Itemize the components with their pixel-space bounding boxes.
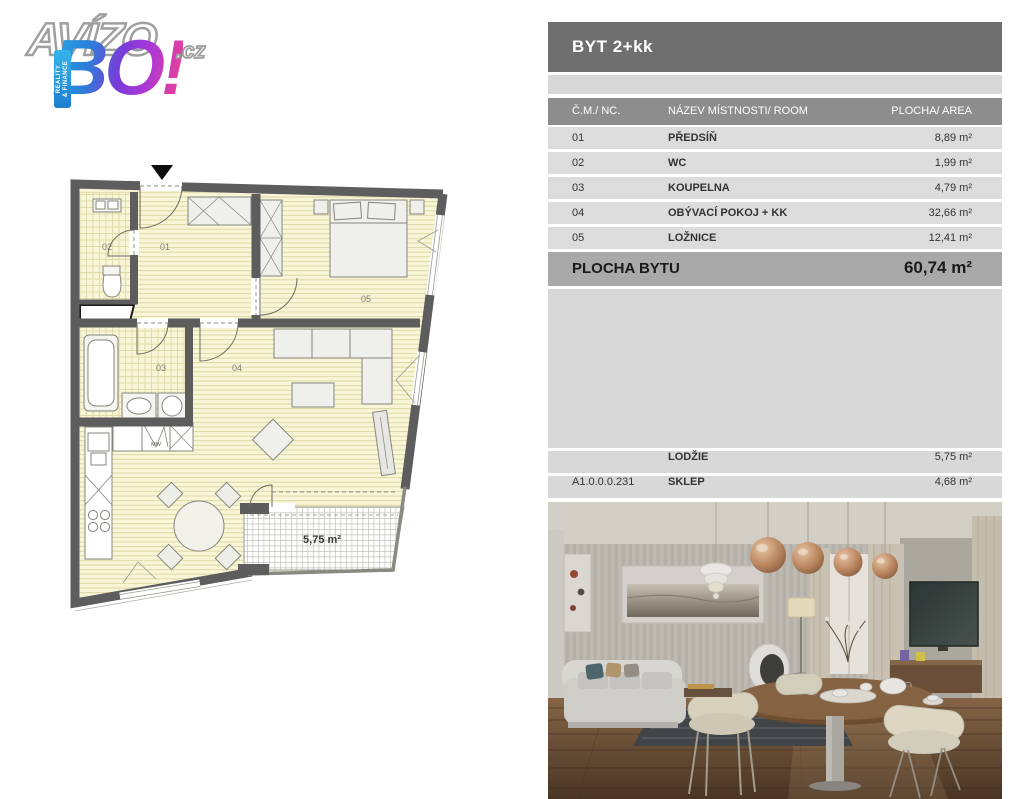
table-row: 02 WC 1,99 m²: [548, 152, 1002, 174]
total-row: PLOCHA BYTU 60,74 m²: [548, 252, 1002, 286]
row-no: 02: [572, 157, 584, 169]
wardrobe-bedroom: [260, 200, 282, 276]
row-area: 8,89 m²: [935, 132, 972, 144]
total-label: PLOCHA BYTU: [572, 260, 680, 277]
brand-bang: BO!: [52, 28, 183, 106]
coffee-table: [292, 383, 334, 407]
loggia: 5,75 m²: [244, 507, 404, 570]
interior-photo: [548, 502, 1002, 799]
total-value: 60,74 m²: [904, 258, 972, 278]
brand-tagline-strip: REALITY & FINANCE: [54, 50, 71, 108]
brand-logo[interactable]: AVÍZO BO! REALITY & FINANCE .cz: [24, 10, 234, 125]
header-room: NÁZEV MÍSTNOSTI/ ROOM: [668, 105, 808, 117]
unit-title: BYT 2+kk: [572, 37, 653, 57]
row-room: PŘEDSÍŇ: [668, 132, 717, 144]
row-area: 1,99 m²: [935, 157, 972, 169]
table-header: Č.M./ NC. NÁZEV MÍSTNOSTI/ ROOM PLOCHA/ …: [548, 98, 1002, 125]
wardrobe-hall: [188, 197, 251, 225]
floorplan: 5,75 m²: [60, 155, 470, 625]
label-room-03: 03: [156, 363, 166, 373]
extra-row-cellar: A1.0.0.0.231 SKLEP 4,68 m²: [548, 476, 1002, 498]
row-room: OBÝVACÍ POKOJ + KK: [668, 207, 787, 219]
row-room: WC: [668, 157, 686, 169]
table-row: 03 KOUPELNA 4,79 m²: [548, 177, 1002, 199]
row-area: 32,66 m²: [929, 207, 972, 219]
row-room: SKLEP: [668, 476, 705, 488]
row-area: 12,41 m²: [929, 232, 972, 244]
row-no: A1.0.0.0.231: [572, 476, 634, 488]
row-no: 01: [572, 132, 584, 144]
row-no: 03: [572, 182, 584, 194]
label-room-02: 02: [102, 242, 112, 252]
header-area: PLOCHA/ AREA: [891, 105, 972, 117]
panel-empty-block: [548, 289, 1002, 448]
label-room-01: 01: [160, 242, 170, 252]
tagline-line1: REALITY: [56, 65, 62, 93]
label-room-04: 04: [232, 363, 242, 373]
row-no: 04: [572, 207, 584, 219]
row-area: 4,68 m²: [935, 476, 972, 488]
row-area: 5,75 m²: [935, 451, 972, 463]
table-row: 01 PŘEDSÍŇ 8,89 m²: [548, 127, 1002, 149]
label-room-05: 05: [361, 294, 371, 304]
unit-title-bar: BYT 2+kk: [548, 22, 1002, 72]
bed: [314, 200, 424, 277]
brand-tld: .cz: [176, 38, 205, 64]
microwave-label: MW: [151, 442, 162, 448]
table-row: 04 OBÝVACÍ POKOJ + KK 32,66 m²: [548, 202, 1002, 224]
row-room: LODŽIE: [668, 451, 708, 463]
row-no: 05: [572, 232, 584, 244]
tagline-line2: & FINANCE: [63, 61, 69, 97]
unit-info-panel: BYT 2+kk Č.M./ NC. NÁZEV MÍSTNOSTI/ ROOM…: [548, 0, 1002, 799]
row-room: KOUPELNA: [668, 182, 730, 194]
table-row: 05 LOŽNICE 12,41 m²: [548, 227, 1002, 249]
loggia-area-label: 5,75 m²: [303, 534, 341, 546]
panel-spacer: [548, 75, 1002, 94]
page: AVÍZO BO! REALITY & FINANCE .cz: [0, 0, 1024, 799]
row-room: LOŽNICE: [668, 232, 716, 244]
entrance-arrow-icon: [151, 165, 173, 180]
header-no: Č.M./ NC.: [572, 105, 620, 117]
extra-row-loggia: LODŽIE 5,75 m²: [548, 451, 1002, 473]
row-area: 4,79 m²: [935, 182, 972, 194]
